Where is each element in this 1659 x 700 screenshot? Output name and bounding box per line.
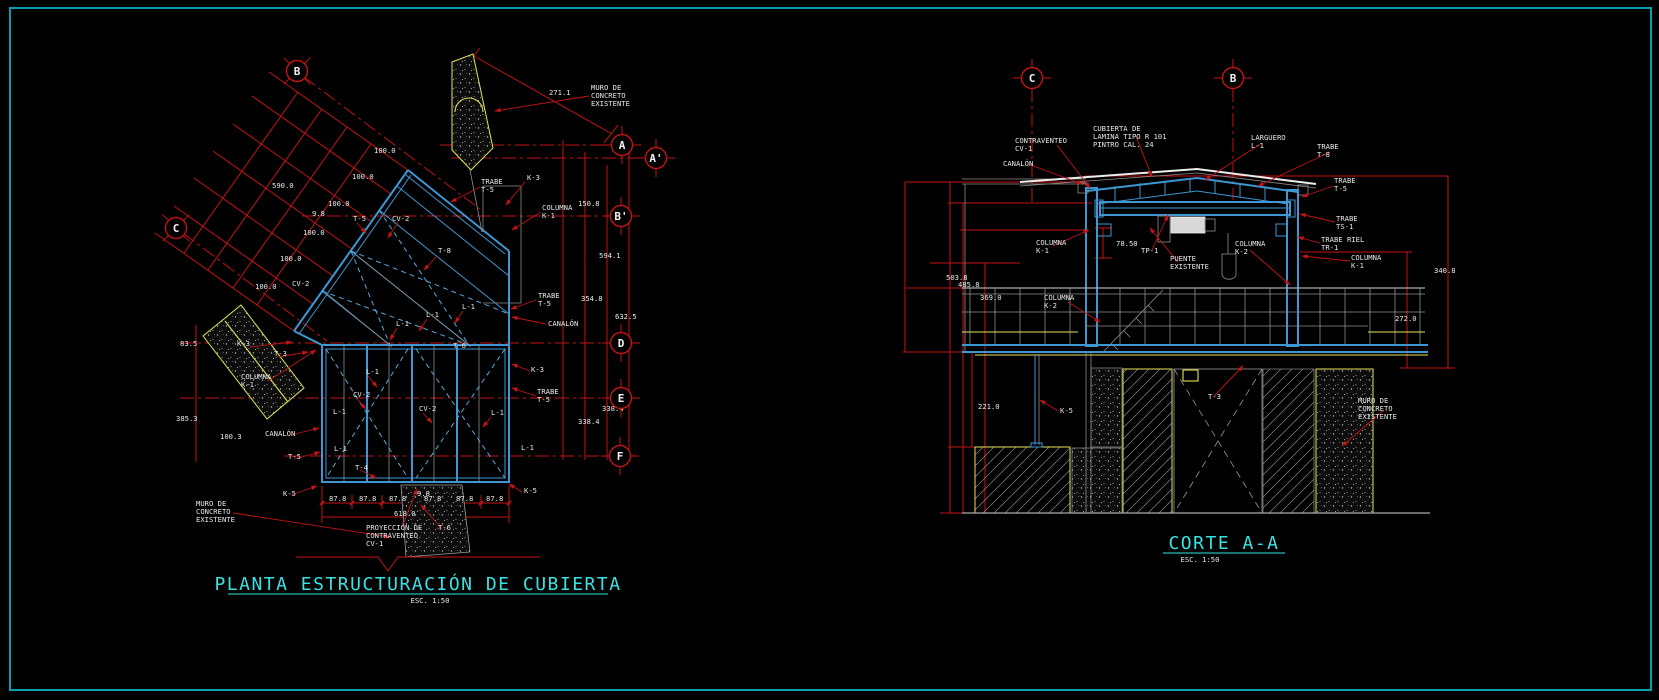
plan-drawing: 271.1MURO DECONCRETOEXISTENTETRABET-5K-3… [155, 48, 675, 605]
annotation-label: T-6 [438, 523, 451, 532]
annotation-label: TRABET-5 [1334, 176, 1356, 193]
annotation-label: K-5 [1060, 406, 1073, 415]
annotation-label: 100.0 [374, 146, 396, 155]
annotation-label: CV-2 [292, 279, 309, 288]
annotation-label: 87.8 [456, 494, 473, 503]
grid-bubble-letter: D [618, 337, 625, 350]
annotation-label: TRABET-5 [481, 177, 503, 194]
annotation-label: L-1 [334, 444, 347, 453]
annotation-label: L-1 [462, 302, 475, 311]
annotation-label: K-5 [283, 489, 296, 498]
annotation-label: L-1 [396, 319, 409, 328]
annotation-label: 87.8 [329, 494, 346, 503]
annotation-label: CUBIERTA DELAMINA TIPO R 101PINTRO CAL. … [1093, 124, 1167, 149]
grid-bubble-letter: C [173, 222, 180, 235]
annotation-label: COLUMNAK-2 [1235, 239, 1266, 256]
grid-bubble-C: C [1013, 59, 1051, 97]
annotation-label: 272.0 [1395, 314, 1417, 323]
annotation-label: CONTRAVENTEOCV-1 [1015, 136, 1067, 153]
annotation-label: 369.0 [980, 293, 1002, 302]
annotation-label: 87.8 [486, 494, 503, 503]
grid-bubble-B: B [284, 58, 311, 85]
annotation-label: CV-2 [353, 390, 370, 399]
annotation-label: TRABE RIELTR-1 [1321, 235, 1364, 252]
annotation-label: L-1 [333, 407, 346, 416]
section-drawing: CANALÓNCONTRAVENTEOCV-1CUBIERTA DELAMINA… [903, 59, 1456, 564]
annotation-label: 87.8 [424, 494, 441, 503]
annotation-label: MURO DECONCRETOEXISTENTE [1358, 396, 1397, 421]
annotation-label: COLUMNAK-1 [542, 203, 573, 220]
plan-scale: ESC. 1:50 [411, 596, 450, 605]
grid-bubble-letter: B' [614, 210, 627, 223]
annotation-label: 338.4 [578, 417, 600, 426]
annotation-label: K-5 [524, 486, 537, 495]
grid-bubble-letter: A [619, 139, 626, 152]
annotation-label: 100.0 [352, 172, 374, 181]
annotation-label: MURO DECONCRETOEXISTENTE [591, 83, 630, 108]
annotation-label: 100.0 [280, 254, 302, 263]
annotation-label: 9.8 [312, 209, 325, 218]
section-title: CORTE A-A [1168, 533, 1279, 554]
annotation-label: CANALÓN [1003, 159, 1033, 168]
annotation-label: 590.0 [272, 181, 294, 190]
grid-bubble-A-prime: A' [637, 139, 675, 177]
annotation-label: COLUMNAK-1 [1036, 238, 1067, 255]
annotation-label: 87.8 [359, 494, 376, 503]
annotation-label: K-3 [527, 173, 540, 182]
annotation-label: L-1 [491, 408, 504, 417]
grid-bubble-D: D [602, 324, 640, 362]
annotation-label: K-3 [237, 339, 250, 348]
annotation-label: 100.3 [220, 432, 242, 441]
annotation-label: T-6 [453, 341, 466, 350]
annotation-label: 632.5 [615, 312, 637, 321]
annotation-label: 594.1 [599, 251, 621, 260]
annotation-label: 78.50 [1116, 239, 1138, 248]
annotation-label: TRABET-5 [537, 387, 559, 404]
annotation-label: 385.3 [176, 414, 198, 423]
cad-sheet: 271.1MURO DECONCRETOEXISTENTETRABET-5K-3… [0, 0, 1659, 700]
annotation-label: L-1 [521, 443, 534, 452]
annotation-label: 340.8 [1434, 266, 1456, 275]
annotation-label: 150.8 [578, 199, 600, 208]
grid-bubble-letter: C [1029, 72, 1036, 85]
grid-bubble-C: C [163, 215, 190, 242]
annotation-label: TRABETS-1 [1336, 214, 1358, 231]
annotation-label: CV-2 [419, 404, 436, 413]
annotation-label: LARGUEROL-1 [1251, 133, 1286, 150]
grid-bubble-letter: A' [649, 152, 662, 165]
annotation-label: T-3 [274, 349, 287, 358]
annotation-label: T-4 [355, 463, 368, 472]
annotation-label: 618.0 [394, 509, 416, 518]
annotation-label: 83.5 [180, 339, 197, 348]
grid-bubble-letter: F [617, 450, 624, 463]
grid-bubble-letter: B [1230, 72, 1237, 85]
annotation-label: K-3 [531, 365, 544, 374]
annotation-label: TRABET-5 [538, 291, 560, 308]
annotation-label: L-1 [366, 367, 379, 376]
grid-bubble-B-prime: B' [602, 197, 640, 235]
annotation-label: 485.8 [958, 280, 980, 289]
annotation-label: TP-1 [1141, 246, 1158, 255]
annotation-label: 221.0 [978, 402, 1000, 411]
annotation-label: CV-2 [392, 214, 409, 223]
section-scale: ESC. 1:50 [1181, 555, 1220, 564]
grid-bubble-letter: B [294, 65, 301, 78]
annotation-label: 87.8 [389, 494, 406, 503]
section-grid-bubbles: CB [1013, 59, 1252, 97]
annotation-label: 354.8 [581, 294, 603, 303]
annotation-label: MURO DECONCRETOEXISTENTE [196, 499, 235, 524]
annotation-label: 100.0 [255, 282, 277, 291]
annotation-label: 100.0 [303, 228, 325, 237]
annotation-label: CANALÓN [265, 429, 295, 438]
grid-bubble-B: B [1214, 59, 1252, 97]
annotation-label: COLUMNAK-1 [1351, 253, 1382, 270]
grid-bubble-letter: E [618, 392, 625, 405]
annotation-label: 100.0 [328, 199, 350, 208]
annotation-label: PUENTEEXISTENTE [1170, 254, 1209, 271]
annotation-label: T-8 [438, 246, 451, 255]
annotation-label: L-1 [426, 310, 439, 319]
annotation-label: CANALÓN [548, 319, 578, 328]
annotation-label: 271.1 [549, 88, 571, 97]
annotation-label: T-3 [1208, 392, 1221, 401]
annotation-label: T-5 [353, 214, 366, 223]
annotation-label: T-5 [288, 452, 301, 461]
annotation-label: TRABET-8 [1317, 142, 1339, 159]
plan-title: PLANTA ESTRUCTURACIÓN DE CUBIERTA [214, 573, 621, 595]
